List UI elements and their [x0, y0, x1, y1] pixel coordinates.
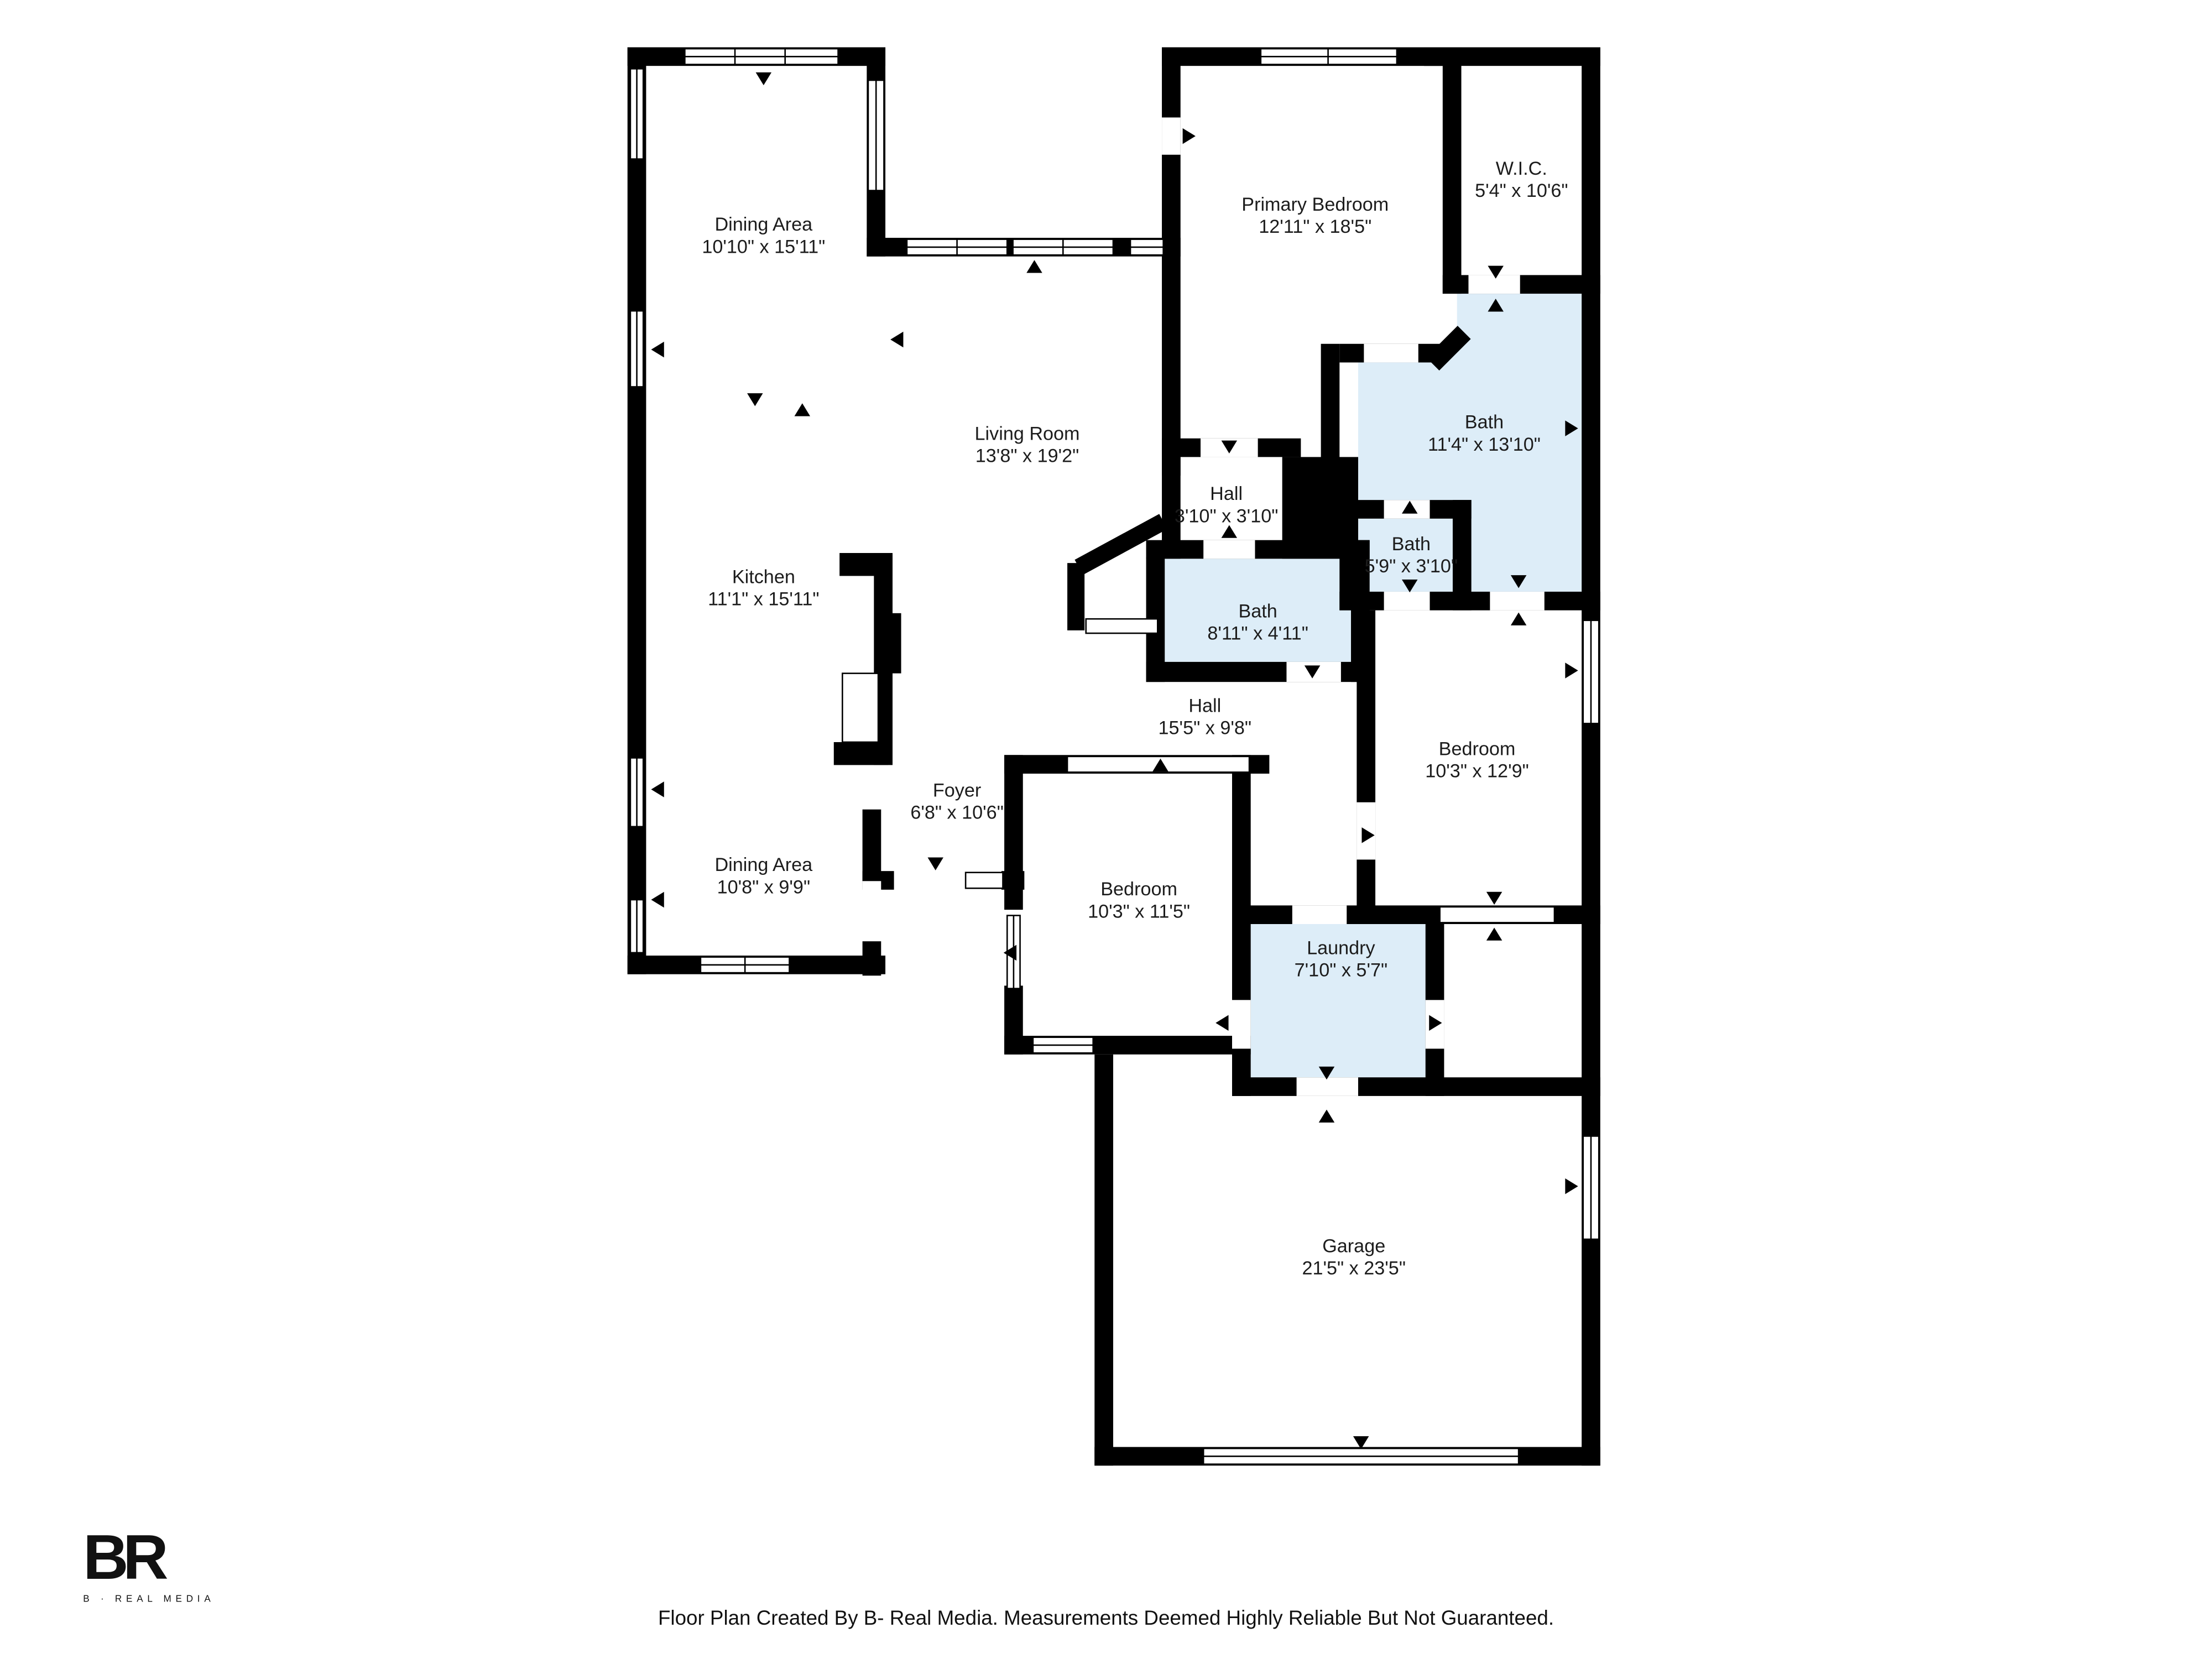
- door-arrow-right: [1565, 662, 1578, 678]
- door-arrow-right: [1183, 128, 1196, 144]
- door-arrow-down: [927, 858, 943, 870]
- room-label-primary-bedroom: Primary Bedroom12'11" x 18'5": [1241, 194, 1389, 237]
- room-label-bedroom-center: Bedroom10'3" x 11'5": [1088, 879, 1190, 922]
- door-arrow-up: [1511, 613, 1526, 625]
- door-arrow-left: [890, 332, 903, 347]
- room-label-wic: W.I.C.5'4" x 10'6": [1475, 158, 1568, 201]
- door-arrow-up: [1026, 260, 1042, 273]
- footer-disclaimer: Floor Plan Created By B- Real Media. Mea…: [0, 1608, 2212, 1630]
- logo-caption: B · REAL MEDIA: [83, 1594, 215, 1604]
- door-arrow-down: [747, 393, 763, 406]
- door-arrow-up: [1222, 525, 1237, 538]
- room-label-kitchen: Kitchen11'1" x 15'11": [708, 566, 819, 609]
- door-arrow-up: [1319, 1109, 1334, 1122]
- door-arrow-up: [795, 403, 810, 416]
- room-label-living-room: Living Room13'8" x 19'2": [975, 423, 1080, 466]
- room-label-foyer: Foyer6'8" x 10'6": [910, 780, 1003, 823]
- room-label-hall-main: Hall15'5" x 9'8": [1159, 696, 1251, 739]
- door-arrow-up: [1486, 927, 1502, 940]
- bedroom-right-opening: [1440, 907, 1554, 922]
- door-arrow-down: [756, 72, 771, 85]
- room-label-dining-area-2: Dining Area10'8" x 9'9": [714, 854, 813, 898]
- page: Dining Area10'10" x 15'11"Primary Bedroo…: [0, 0, 2212, 1659]
- floor-plan-canvas: Dining Area10'10" x 15'11"Primary Bedroo…: [0, 0, 2212, 1659]
- logo: BR B · REAL MEDIA: [83, 1527, 215, 1605]
- door-arrow-right: [1565, 1178, 1578, 1194]
- room-label-dining-area-1: Dining Area10'10" x 15'11": [702, 214, 825, 257]
- front-door: [966, 873, 1003, 888]
- logo-mark: BR: [83, 1527, 215, 1590]
- room-label-hall-small: Hall3'10" x 3'10": [1175, 483, 1279, 526]
- room-label-garage: Garage21'5" x 23'5": [1302, 1235, 1406, 1279]
- door-arrow-down: [1486, 892, 1502, 905]
- door-arrow-left: [651, 892, 664, 907]
- openings: [966, 757, 1554, 1464]
- door-arrow-left: [1215, 1015, 1228, 1031]
- door-arrow-left: [651, 342, 664, 357]
- room-label-bedroom-right: Bedroom10'3" x 12'9": [1425, 738, 1529, 781]
- room-labels: Dining Area10'10" x 15'11"Primary Bedroo…: [702, 158, 1568, 1279]
- door-arrow-left: [651, 781, 664, 797]
